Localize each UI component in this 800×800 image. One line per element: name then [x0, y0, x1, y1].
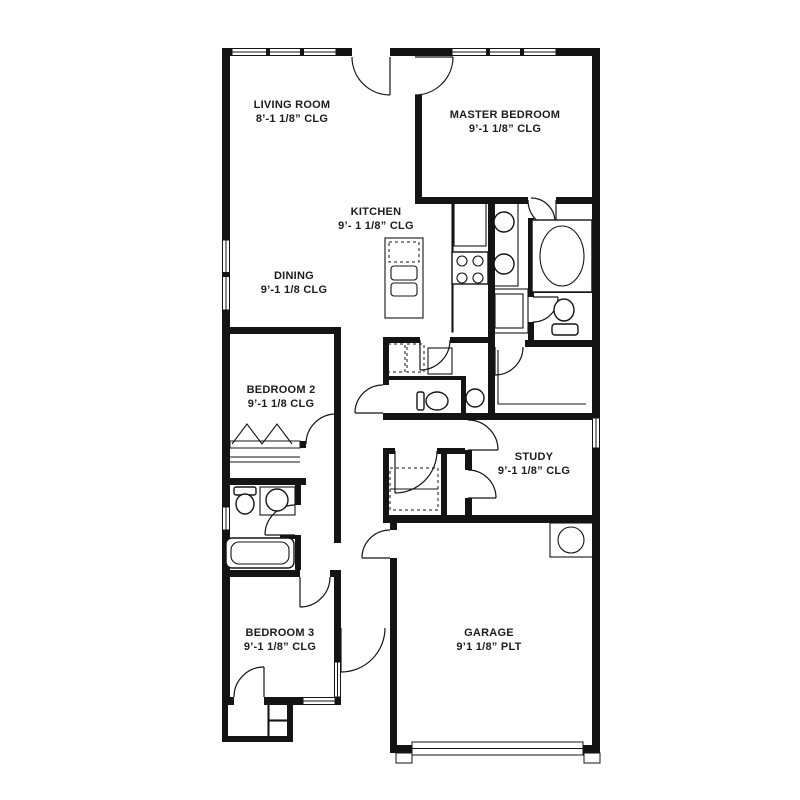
- room-name: KITCHEN: [338, 205, 414, 219]
- study-window: [593, 418, 600, 448]
- master-toilet-icon: [552, 299, 578, 335]
- room-name: BEDROOM 3: [244, 626, 316, 640]
- room-label-living: LIVING ROOM 8’-1 1/8” CLG: [254, 98, 331, 126]
- bathtub-icon: [532, 220, 592, 292]
- room-name: BEDROOM 2: [247, 383, 316, 397]
- kitchen-island-icon: [385, 238, 423, 318]
- room-ceiling: 9’-1 1/8 CLG: [247, 397, 316, 411]
- range-cooktop-icon: [452, 252, 488, 284]
- study-door: [468, 420, 498, 450]
- bath2-toilet-icon: [234, 487, 256, 514]
- coat-closet-shelves: [390, 468, 438, 510]
- room-name: GARAGE: [456, 626, 521, 640]
- bedroom3-door: [300, 577, 330, 607]
- master-closet-door: [495, 347, 523, 375]
- rear-door: [352, 57, 390, 95]
- room-label-master: MASTER BEDROOM 9’-1 1/8” CLG: [450, 108, 560, 136]
- shower-icon: [490, 289, 528, 333]
- garage-entry-door: [362, 530, 390, 558]
- room-label-bedroom3: BEDROOM 3 9’-1 1/8” CLG: [244, 626, 316, 654]
- bedroom3-window: [303, 698, 335, 705]
- dining-window: [222, 240, 230, 310]
- master-closet-rod: [498, 350, 586, 404]
- master-bedroom-door: [415, 57, 453, 95]
- bedroom3-closet-door: [234, 667, 264, 697]
- room-label-garage: GARAGE 9’1 1/8” PLT: [456, 626, 521, 654]
- refrigerator-icon: [454, 202, 486, 246]
- room-name: LIVING ROOM: [254, 98, 331, 112]
- powder-toilet-icon: [417, 392, 448, 410]
- coat-closet-door: [395, 451, 437, 493]
- bath2-tub-icon: [226, 538, 294, 568]
- powder-door: [355, 385, 383, 413]
- room-ceiling: 9’- 1 1/8” CLG: [338, 219, 414, 233]
- bedroom2-door: [306, 414, 336, 444]
- bedroom2-closet: [228, 424, 300, 462]
- room-ceiling: 9’-1 1/8” CLG: [450, 122, 560, 136]
- floor-plan-svg: [0, 0, 800, 800]
- powder-sink-icon: [466, 389, 484, 407]
- room-name: DINING: [261, 269, 328, 283]
- floor-plan: LIVING ROOM 8’-1 1/8” CLG MASTER BEDROOM…: [0, 0, 800, 800]
- room-label-study: STUDY 9’-1 1/8” CLG: [498, 450, 570, 478]
- porch-window: [335, 662, 341, 697]
- room-label-dining: DINING 9’-1 1/8 CLG: [261, 269, 328, 297]
- study-closet-door: [468, 470, 496, 498]
- front-door: [341, 628, 385, 672]
- garage-door: [396, 742, 600, 763]
- bath2-window: [223, 507, 230, 530]
- room-name: STUDY: [498, 450, 570, 464]
- room-ceiling: 8’-1 1/8” CLG: [254, 112, 331, 126]
- living-room-window: [232, 48, 336, 56]
- room-ceiling: 9’-1 1/8 CLG: [261, 283, 328, 297]
- water-heater-icon: [550, 523, 594, 557]
- bath2-sink-icon: [260, 487, 295, 515]
- room-name: MASTER BEDROOM: [450, 108, 560, 122]
- room-label-kitchen: KITCHEN 9’- 1 1/8” CLG: [338, 205, 414, 233]
- room-ceiling: 9’-1 1/8” CLG: [498, 464, 570, 478]
- room-ceiling: 9’1 1/8” PLT: [456, 640, 521, 654]
- room-label-bedroom2: BEDROOM 2 9’-1 1/8 CLG: [247, 383, 316, 411]
- master-bedroom-window: [452, 48, 556, 56]
- room-ceiling: 9’-1 1/8” CLG: [244, 640, 316, 654]
